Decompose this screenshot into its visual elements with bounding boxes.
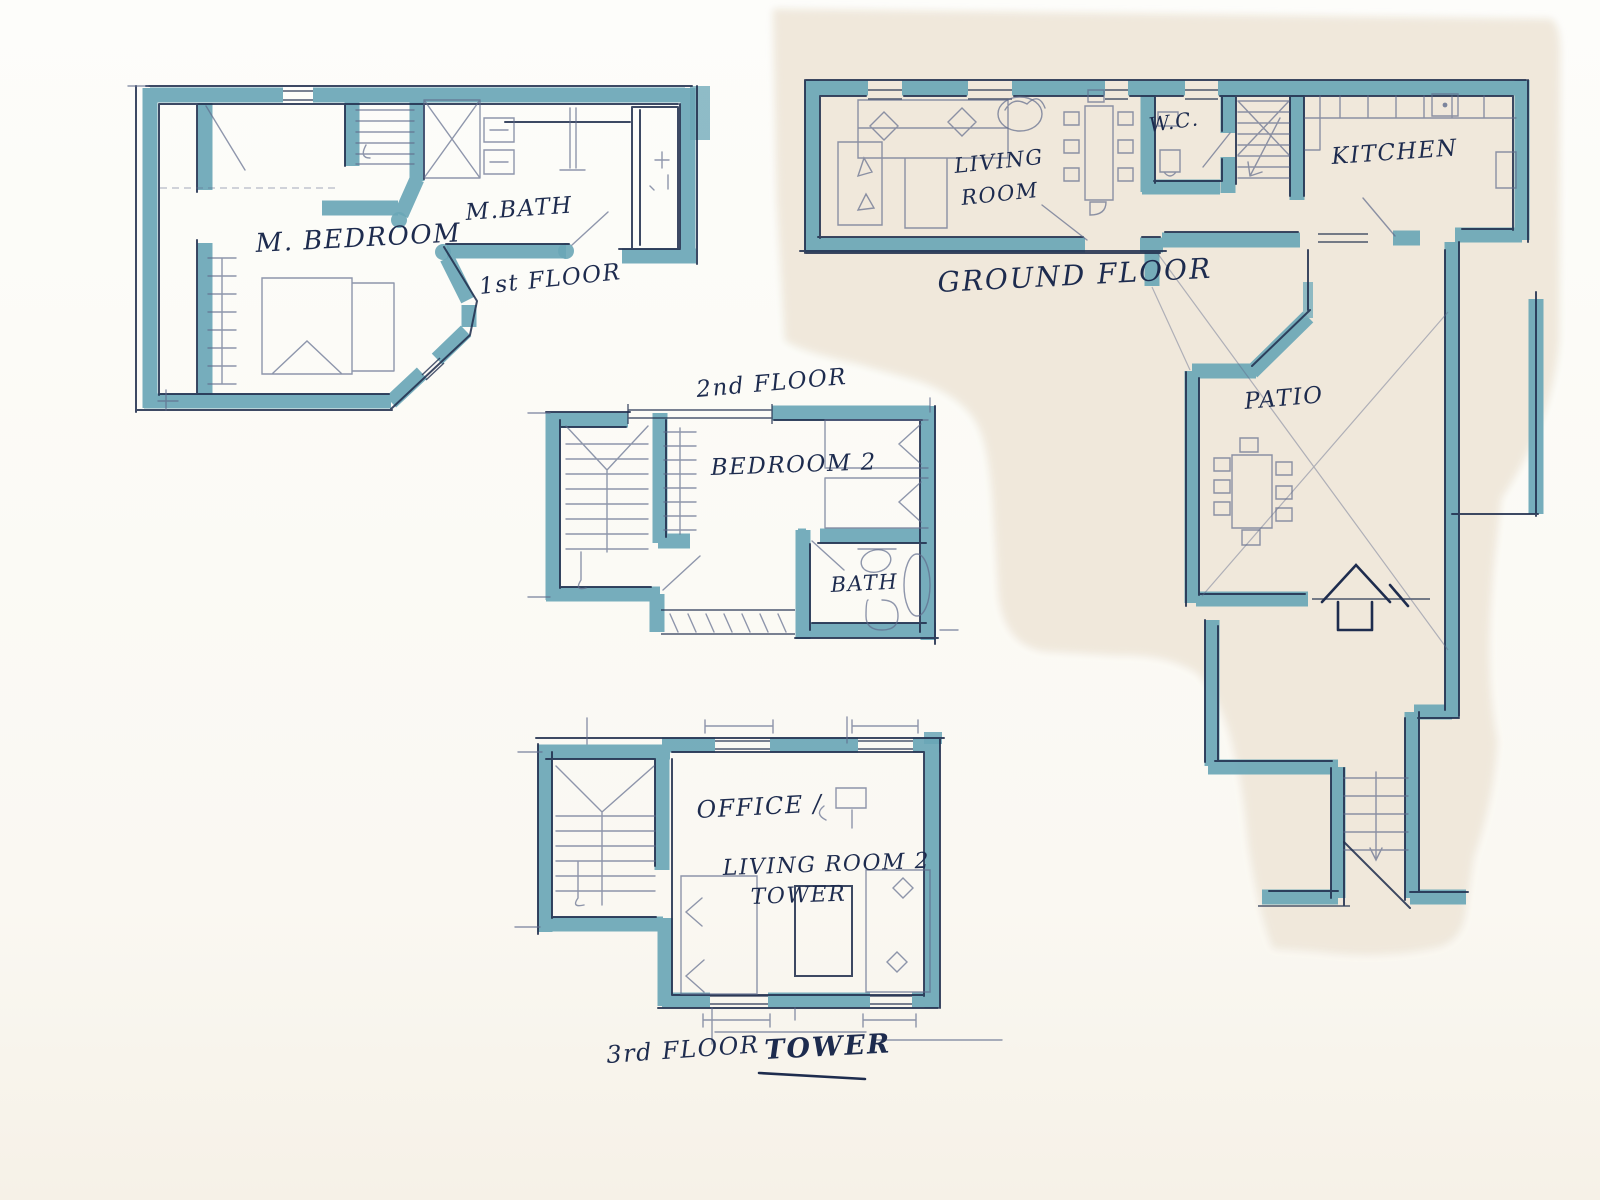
room-label-bath2: BATH (829, 569, 899, 597)
stove-burner-dot (1443, 103, 1448, 108)
floorplan-sketch-page: M. BEDROOM M.BATH 1st FLOOR 2nd FLOOR BE… (0, 0, 1600, 1200)
floorplan-sketch-canvas: M. BEDROOM M.BATH 1st FLOOR 2nd FLOOR BE… (0, 0, 1600, 1200)
room-label-tower: TOWER (750, 882, 846, 910)
caption-tower-underlined: TOWER (764, 1028, 892, 1066)
chimney-bump (690, 86, 710, 140)
